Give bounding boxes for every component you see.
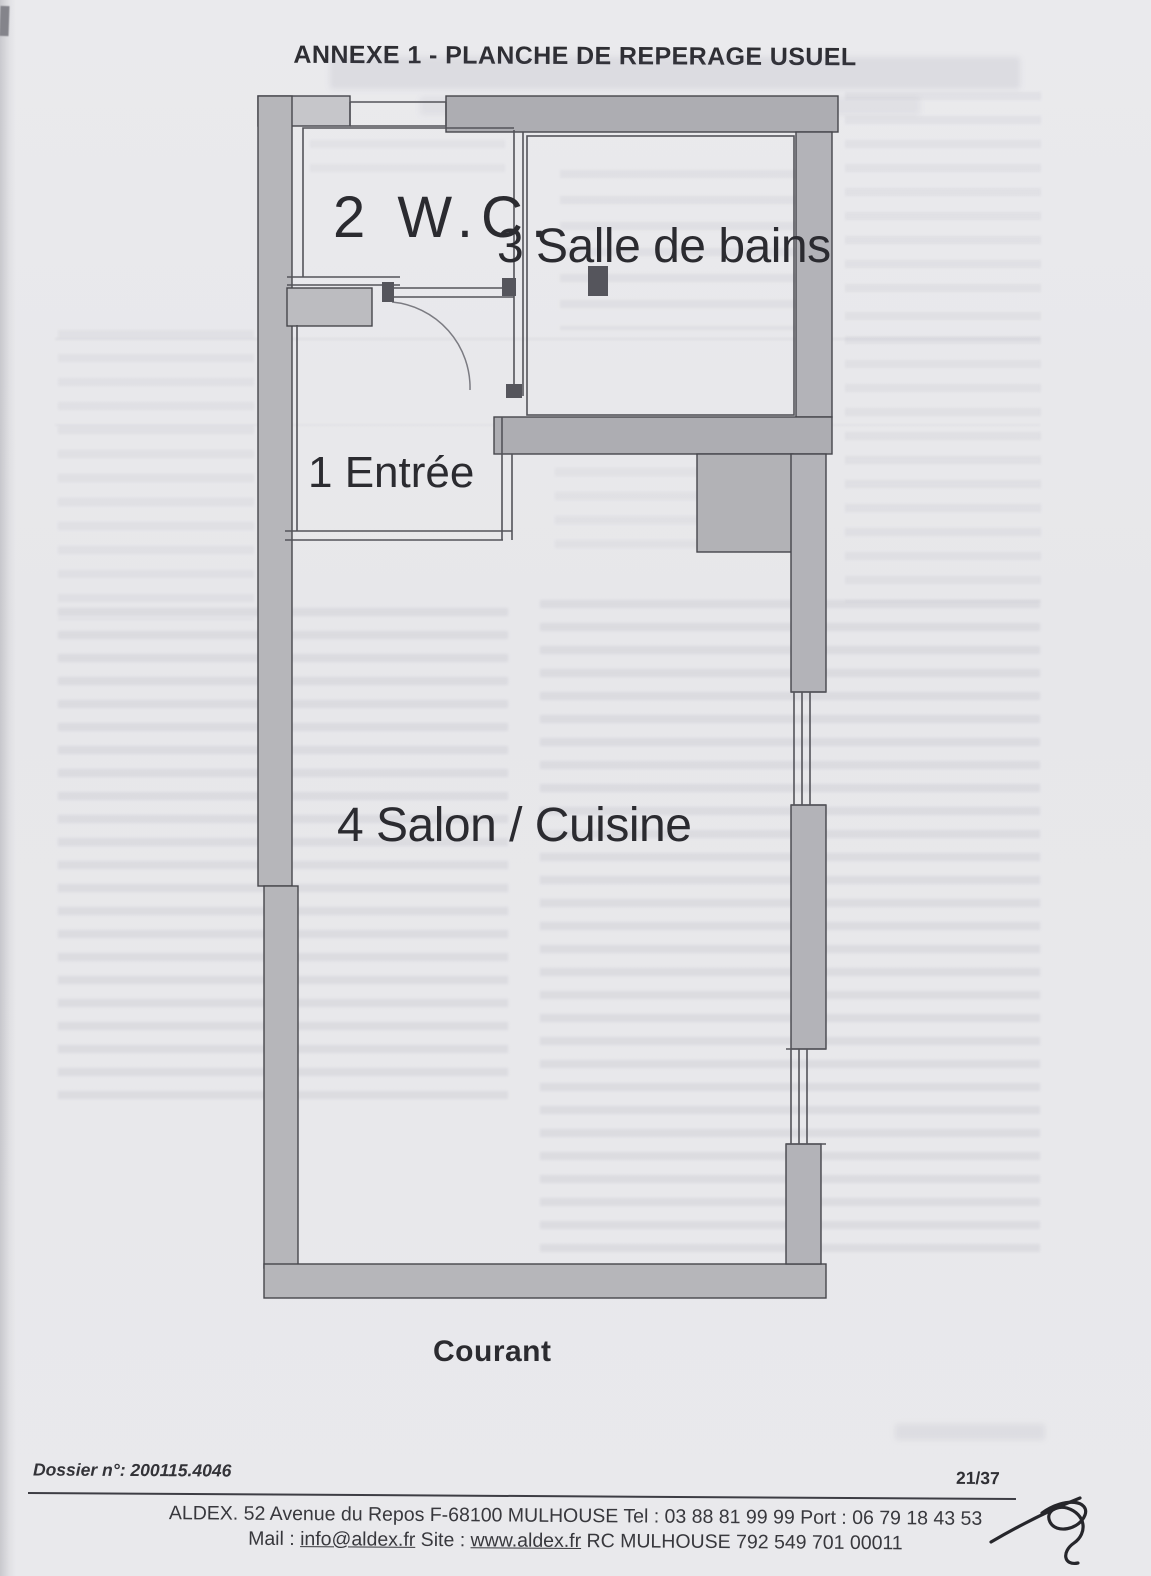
wall-left-lower [264, 886, 298, 1268]
door-jamb [506, 384, 522, 398]
floor-plan: 2 W.C. 3 Salle de bains 1 Entrée 4 Salon… [258, 96, 838, 1368]
door-jamb [382, 282, 394, 302]
door-swing-arc [392, 302, 470, 390]
wall-right-salon-b [791, 805, 826, 1049]
dossier-number: Dossier n°: 200115.4046 [33, 1459, 231, 1481]
window [791, 692, 826, 805]
wall-mid-band [494, 417, 832, 454]
mail-label: Mail : [248, 1528, 300, 1550]
site-label: Site : [415, 1529, 470, 1551]
wall-right-salon-a [791, 454, 826, 692]
door-jambs [382, 266, 608, 398]
top-opening [350, 102, 446, 126]
wall-right-bath [796, 132, 832, 417]
scanned-document-page: ANNEXE 1 - PLANCHE DE REPERAGE USUEL [0, 0, 1151, 1576]
entree-bottom-line [285, 531, 512, 540]
wall-mid-chunk [697, 454, 793, 552]
room-label-salon-cuisine: 4 Salon / Cuisine [337, 799, 691, 852]
wall-bottom [264, 1264, 826, 1298]
wall-left-upper [258, 96, 292, 886]
site-link[interactable]: www.aldex.fr [471, 1529, 582, 1552]
plan-caption: Courant [433, 1335, 552, 1368]
bath-outline [527, 136, 794, 415]
floor-plan-svg: 2 W.C. 3 Salle de bains 1 Entrée 4 Salon… [0, 0, 1151, 1576]
page-number: 21/37 [956, 1468, 1000, 1489]
room-label-entree: 1 Entrée [308, 448, 474, 497]
wall-pillar [287, 288, 372, 326]
wall-right-salon-c [786, 1144, 821, 1264]
hall-lines [390, 288, 514, 297]
room-label-salle-de-bains: 3 Salle de bains [497, 220, 831, 273]
window [786, 1049, 826, 1144]
rc-text: RC MULHOUSE 792 549 701 00011 [581, 1530, 903, 1554]
footer-address: ALDEX. 52 Avenue du Repos F-68100 MULHOU… [60, 1500, 1091, 1557]
mail-link[interactable]: info@aldex.fr [300, 1528, 415, 1551]
door-jamb [502, 278, 516, 296]
wall-top-right [446, 96, 838, 132]
